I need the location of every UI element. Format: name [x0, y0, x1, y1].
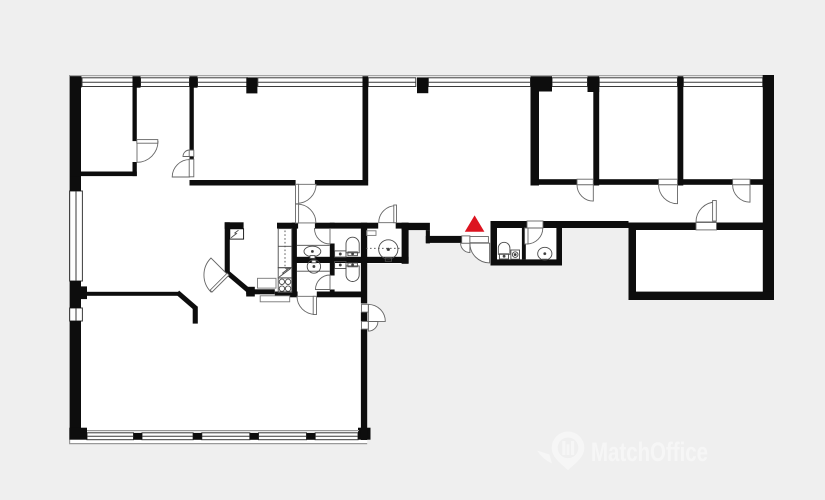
svg-text:MatchOffice: MatchOffice	[591, 437, 708, 467]
